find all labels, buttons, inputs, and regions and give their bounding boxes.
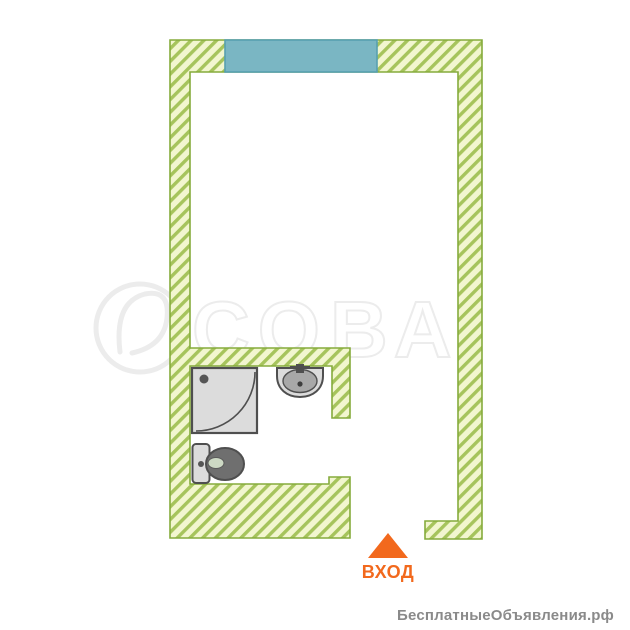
floor-plan-page: СОВА ВХОД bbox=[0, 0, 630, 630]
window bbox=[225, 40, 377, 72]
owl-body-icon bbox=[119, 293, 167, 353]
toilet-button bbox=[198, 461, 204, 467]
site-watermark-label: БесплатныеОбъявления.рф bbox=[397, 607, 614, 624]
sink-icon bbox=[277, 364, 323, 397]
sink-faucet bbox=[296, 364, 304, 373]
entrance-label: ВХОД bbox=[362, 562, 414, 582]
floor-plan-canvas: СОВА ВХОД bbox=[0, 0, 630, 630]
entrance-arrow-icon bbox=[368, 533, 408, 558]
shower-icon bbox=[192, 368, 257, 433]
toilet-seat-hole bbox=[208, 458, 224, 469]
sink-drain bbox=[297, 381, 302, 386]
entrance-marker: ВХОД bbox=[362, 533, 414, 582]
toilet-icon bbox=[193, 444, 245, 483]
shower-drain bbox=[200, 375, 209, 384]
